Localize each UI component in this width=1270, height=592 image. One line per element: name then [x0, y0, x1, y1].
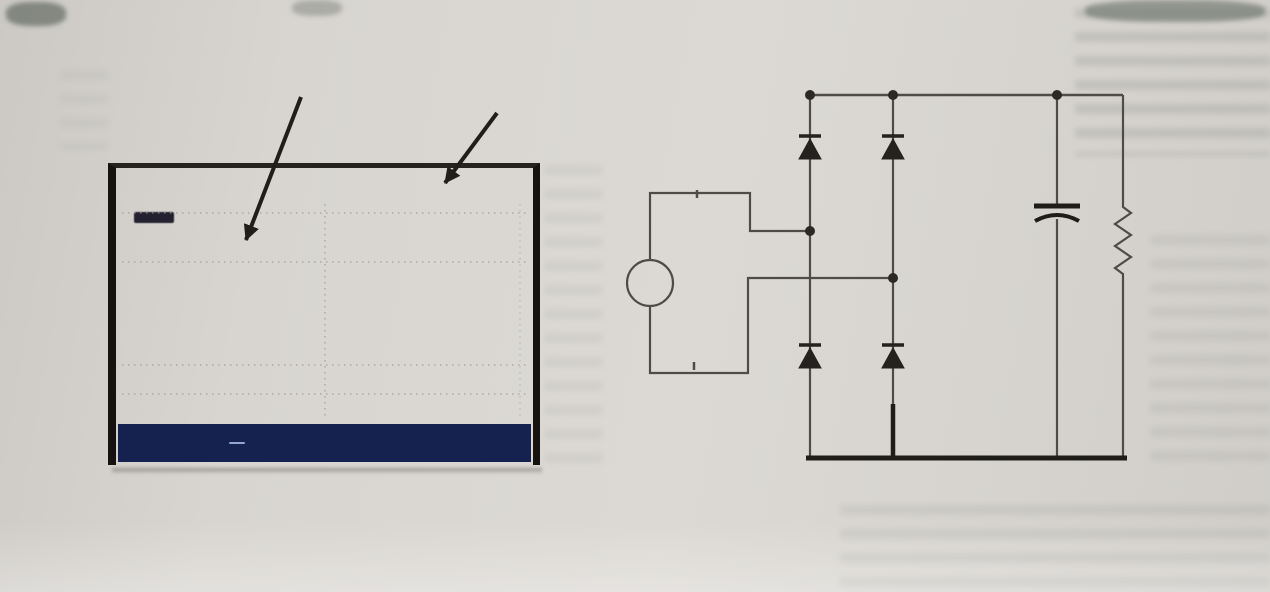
page-bleedthrough	[1150, 235, 1270, 470]
source-bottom-wire	[650, 278, 889, 373]
page-bleedthrough	[840, 505, 1270, 592]
resistor-leg	[1115, 95, 1131, 456]
diode-d4	[799, 345, 821, 368]
softkey-volts-amps[interactable]	[118, 424, 192, 462]
softkey-scope[interactable]	[195, 424, 279, 462]
zoom-chip	[409, 436, 421, 438]
softkey-empty	[464, 424, 531, 462]
scope-softkey-bar	[118, 424, 531, 462]
diode-d3	[882, 345, 904, 368]
diode-d2	[882, 136, 904, 159]
ac-source	[627, 260, 673, 306]
scanned-page	[0, 0, 1270, 592]
softkey-pill	[229, 442, 245, 444]
capacitor-plate-bottom	[1035, 215, 1079, 221]
page-bleedthrough	[6, 2, 66, 26]
circuit-heavy-strokes	[806, 206, 1127, 458]
grid-dotted-lines	[122, 204, 526, 416]
junction-dots	[805, 90, 1062, 283]
page-bleedthrough	[292, 0, 342, 16]
page-bleedthrough	[1075, 8, 1270, 156]
softkey-cursor[interactable]	[282, 424, 366, 462]
oscilloscope-screen	[108, 163, 540, 465]
softkey-zoom[interactable]	[369, 424, 461, 462]
scope-footer	[116, 404, 533, 420]
page-bleedthrough	[60, 70, 108, 150]
page-bleedthrough	[545, 165, 603, 475]
page-bleedthrough	[1085, 0, 1265, 22]
diodes	[799, 136, 904, 368]
source-top-wire	[650, 193, 806, 260]
diode-d1	[799, 136, 821, 159]
waveform-plot	[116, 168, 533, 465]
circuit-wires	[627, 95, 1131, 456]
photo-shadow	[112, 468, 542, 474]
